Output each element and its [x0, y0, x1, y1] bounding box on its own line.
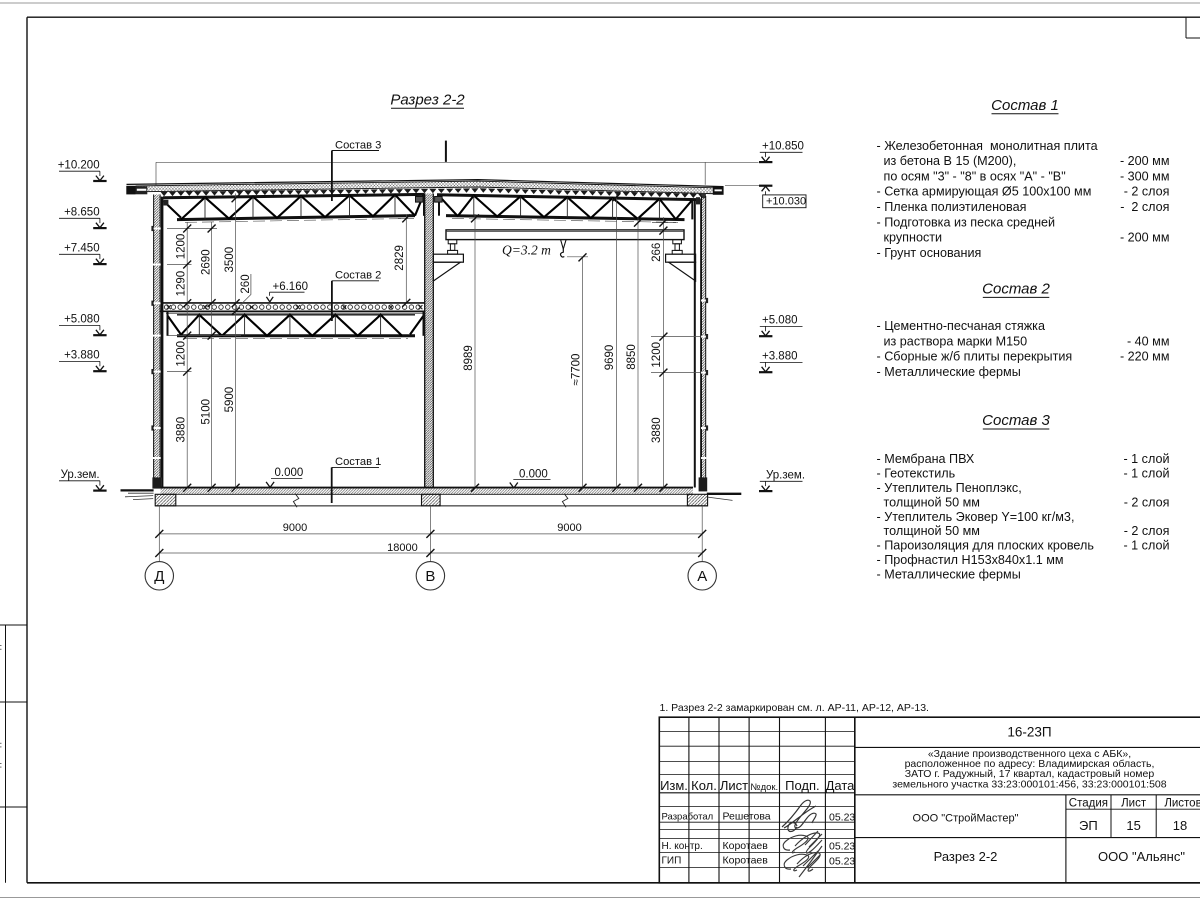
svg-text:05.23: 05.23 [829, 856, 855, 868]
svg-text:из раствора марки М150: из раствора марки М150 [877, 334, 1028, 348]
svg-text:А: А [697, 568, 707, 585]
svg-text:- Профнастил Н153х840х1.1 мм: - Профнастил Н153х840х1.1 мм [877, 553, 1064, 567]
svg-text:- 40 мм: - 40 мм [1127, 334, 1170, 348]
svg-text:15: 15 [1126, 818, 1140, 833]
svg-text:ООО "СтройМастер": ООО "СтройМастер" [913, 813, 1019, 825]
svg-text:Листов: Листов [1164, 797, 1200, 809]
svg-text:- 2 слоя: - 2 слоя [1124, 495, 1170, 509]
svg-text:ГИП: ГИП [662, 855, 682, 866]
svg-text:Подп.: Подп. [785, 778, 820, 793]
svg-text:1200: 1200 [651, 342, 663, 368]
svg-text:Коротаев: Коротаев [723, 854, 769, 866]
svg-text:земельного участка 33:23:00010: земельного участка 33:23:000101:456, 33:… [892, 778, 1166, 790]
svg-text:- 220 мм: - 220 мм [1120, 350, 1170, 364]
svg-text:16-23П: 16-23П [1007, 725, 1051, 740]
svg-text:Коротаев: Коротаев [723, 840, 769, 852]
svg-text:Q=3.2 т: Q=3.2 т [502, 243, 551, 258]
svg-text:Лист: Лист [720, 778, 748, 793]
svg-text:+7.450: +7.450 [64, 243, 100, 255]
svg-text:Ур.зем.: Ур.зем. [766, 470, 805, 482]
svg-text:- Утеплитель Эковер Y=100 кг/м: - Утеплитель Эковер Y=100 кг/м3, [877, 510, 1075, 524]
svg-text:Дата: Дата [826, 778, 856, 793]
svg-text:ЭП: ЭП [1079, 818, 1098, 833]
svg-text:- 1 слой: - 1 слой [1123, 452, 1169, 466]
svg-text:Разрез 2-2: Разрез 2-2 [390, 92, 465, 109]
svg-text:Состав 3: Состав 3 [982, 412, 1050, 429]
svg-text:260: 260 [240, 274, 252, 293]
svg-text:9690: 9690 [604, 345, 616, 371]
svg-text:- Мембрана ПВХ: - Мембрана ПВХ [877, 452, 975, 466]
svg-text:Подп. и дата: Подп. и дата [0, 730, 2, 778]
svg-text:- 1 слой: - 1 слой [1120, 466, 1170, 480]
svg-text:+10.850: +10.850 [762, 141, 804, 153]
svg-text:- 1 слой: - 1 слой [1123, 539, 1169, 553]
svg-text:- Сетка армирующая Ø5 100х100: - Сетка армирующая Ø5 100х100 мм [877, 185, 1092, 199]
svg-text:по осям "3" - "8" в осях "А" -: по осям "3" - "8" в осях "А" - "В" [877, 169, 1066, 183]
svg-text:9000: 9000 [557, 522, 581, 534]
svg-text:- Подготовка из песка средней: - Подготовка из песка средней [877, 215, 1056, 229]
svg-text:0.000: 0.000 [275, 467, 304, 479]
svg-text:Стадия: Стадия [1069, 797, 1108, 809]
svg-text:- Железобетонная монолитная п: - Железобетонная монолитная плита [877, 139, 1098, 153]
svg-text:В: В [425, 568, 435, 585]
svg-text:2829: 2829 [394, 245, 406, 271]
svg-text:Инв. № подл.: Инв. № подл. [0, 638, 2, 688]
svg-text:2690: 2690 [201, 249, 213, 275]
svg-text:5100: 5100 [201, 399, 213, 425]
svg-text:0.000: 0.000 [519, 468, 548, 480]
svg-text:крупности: крупности [877, 231, 943, 245]
svg-text:3880: 3880 [651, 417, 663, 443]
svg-text:+3.880: +3.880 [64, 350, 100, 362]
svg-text:18000: 18000 [387, 542, 418, 554]
svg-text:Ур.зем.: Ур.зем. [61, 469, 100, 481]
svg-text:+10.030: +10.030 [766, 196, 806, 208]
svg-text:толщиной 50 мм: толщиной 50 мм [877, 524, 980, 538]
svg-text:- 2 слоя: - 2 слоя [1120, 200, 1169, 214]
svg-text:9000: 9000 [283, 522, 307, 534]
svg-text:+5.080: +5.080 [64, 314, 100, 326]
svg-text:Взам. инв. №: Взам. инв. № [0, 820, 2, 870]
svg-text:- 200 мм: - 200 мм [1120, 154, 1170, 168]
svg-text:Состав 2: Состав 2 [982, 281, 1050, 298]
svg-text:- Грунт основания: - Грунт основания [877, 246, 982, 260]
svg-text:Состав 2: Состав 2 [335, 270, 381, 282]
svg-text:Н. контр.: Н. контр. [662, 841, 703, 852]
svg-text:05.23: 05.23 [829, 841, 855, 853]
svg-text:Лист: Лист [1121, 797, 1147, 809]
svg-text:Д: Д [154, 568, 164, 585]
svg-text:- 300 мм: - 300 мм [1120, 169, 1170, 183]
svg-text:5900: 5900 [224, 387, 236, 413]
svg-text:3880: 3880 [175, 417, 187, 443]
svg-text:8989: 8989 [463, 345, 475, 371]
svg-text:- Пленка полиэтиленовая: - Пленка полиэтиленовая [877, 200, 1027, 214]
svg-text:- Сборные ж/б плиты перекрытия: - Сборные ж/б плиты перекрытия [877, 350, 1073, 364]
svg-text:18: 18 [1173, 818, 1187, 833]
svg-text:- Пароизоляция для плоских кро: - Пароизоляция для плоских кровель [877, 539, 1095, 553]
svg-text:из бетона В 15 (М200),: из бетона В 15 (М200), [877, 154, 1017, 168]
svg-text:ООО "Альянс": ООО "Альянс" [1098, 849, 1185, 864]
svg-text:≈7700: ≈7700 [570, 354, 582, 386]
svg-text:№док.: №док. [750, 782, 778, 793]
svg-text:Разрез 2-2: Разрез 2-2 [934, 849, 998, 864]
svg-text:- 200 мм: - 200 мм [1120, 231, 1170, 245]
svg-text:Изм.: Изм. [660, 778, 688, 793]
svg-text:8850: 8850 [626, 344, 638, 370]
svg-text:05.23: 05.23 [829, 812, 855, 824]
svg-text:Состав 1: Состав 1 [991, 97, 1059, 114]
svg-text:+6.160: +6.160 [273, 281, 309, 293]
svg-text:Разработал: Разработал [662, 811, 714, 822]
svg-text:- Цементно-песчаная стяжка: - Цементно-песчаная стяжка [877, 319, 1045, 333]
svg-text:+5.080: +5.080 [762, 315, 798, 327]
svg-text:- 2 слоя: - 2 слоя [1124, 185, 1170, 199]
svg-text:+3.880: +3.880 [762, 351, 798, 363]
svg-text:3500: 3500 [224, 247, 236, 273]
svg-text:- Утеплитель Пеноплэкс,: - Утеплитель Пеноплэкс, [877, 481, 1022, 495]
svg-text:1200: 1200 [175, 341, 187, 367]
svg-text:1. Разрез 2-2 замаркирован см.: 1. Разрез 2-2 замаркирован см. л. АР-11,… [660, 702, 929, 714]
svg-text:Состав 1: Состав 1 [335, 456, 381, 468]
svg-text:- Металлические фермы: - Металлические фермы [877, 365, 1021, 379]
svg-text:+10.200: +10.200 [58, 159, 100, 171]
svg-text:- Геотекстиль: - Геотекстиль [877, 466, 956, 480]
svg-text:266: 266 [651, 243, 663, 262]
svg-text:толщиной 50 мм: толщиной 50 мм [877, 495, 980, 509]
svg-text:Состав 3: Состав 3 [335, 139, 381, 151]
svg-text:1200: 1200 [175, 234, 187, 260]
svg-text:- 2 слоя: - 2 слоя [1124, 524, 1170, 538]
svg-text:Кол.: Кол. [691, 778, 717, 793]
svg-text:+8.650: +8.650 [64, 207, 100, 219]
svg-text:- Металлические фермы: - Металлические фермы [877, 568, 1021, 582]
svg-text:Решетова: Решетова [723, 810, 771, 822]
svg-text:1290: 1290 [175, 271, 187, 297]
